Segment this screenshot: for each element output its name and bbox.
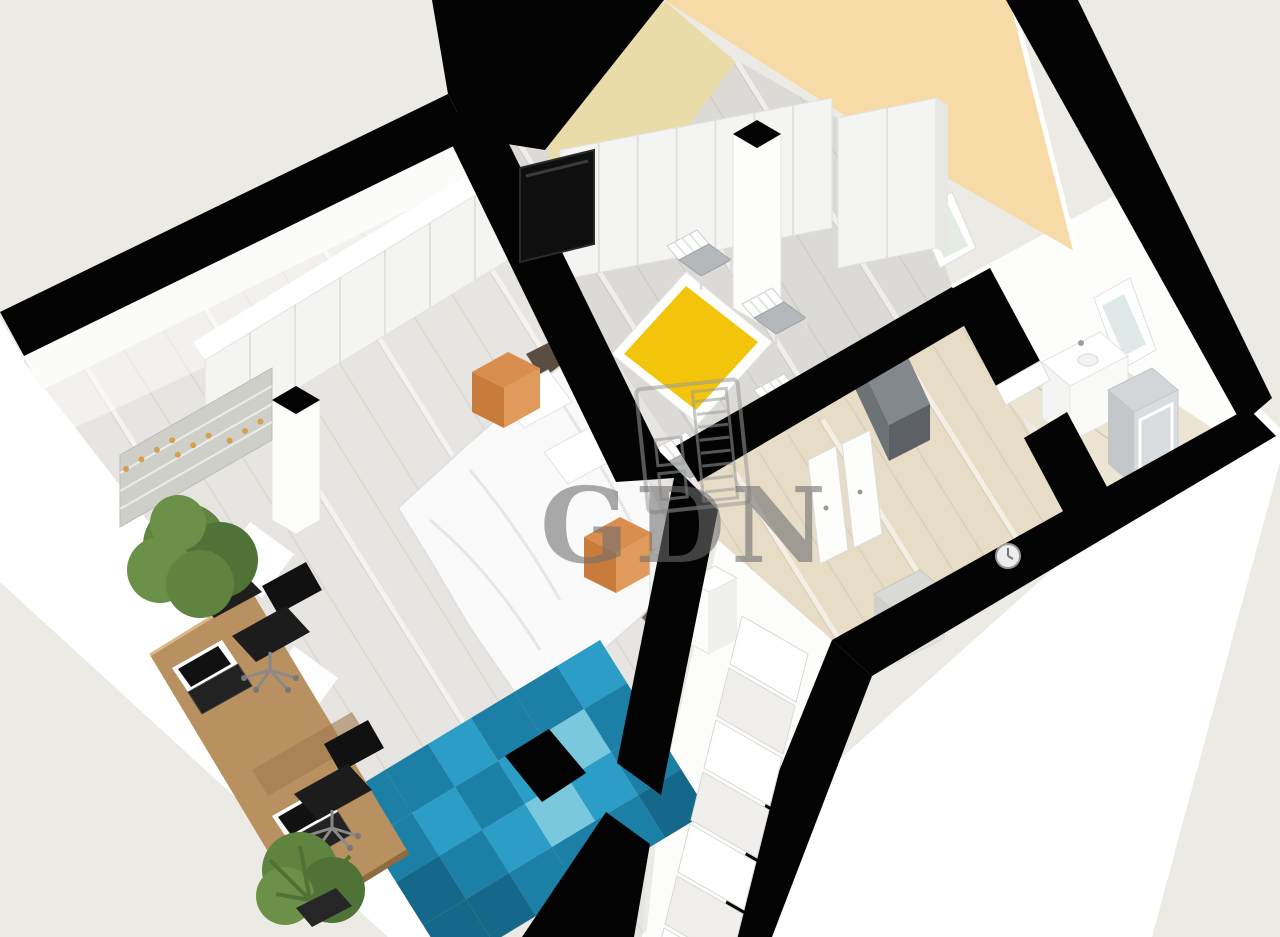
office-chair-wheel [355, 833, 361, 839]
watermark-text: GDN [540, 464, 832, 587]
radiator-brass-dot [227, 438, 233, 444]
plant-bush-foliage [166, 550, 234, 618]
radiator-brass-dot [123, 466, 129, 472]
hall-door-2-handle [858, 490, 863, 495]
radiator-brass-dot [138, 456, 144, 462]
radiator-brass-dot [169, 437, 175, 443]
tv-screen [520, 150, 594, 262]
tall-white-cabinet [838, 98, 948, 268]
chimney-column-bedroom [272, 386, 320, 534]
office-chair-wheel [253, 687, 259, 693]
floor-plan-3d-render: GDN [0, 0, 1280, 937]
plant-bush-foliage [150, 495, 206, 551]
radiator-brass-dot [175, 452, 181, 458]
radiator-brass-dot [242, 428, 248, 434]
wall-tv [520, 150, 594, 262]
tall-cabinet-side [936, 98, 948, 256]
chimney-column-bedroom-body [272, 400, 320, 534]
radiator-brass-dot [257, 418, 263, 424]
wall-clock [996, 544, 1020, 568]
radiator-brass-dot [206, 433, 212, 439]
vanity-sink-basin [1078, 354, 1098, 366]
office-chair-wheel [347, 845, 353, 851]
radiator-brass-dot [154, 447, 160, 453]
floor-plan-stage: GDN [0, 0, 1280, 937]
office-chair-wheel [241, 675, 247, 681]
radiator-brass-dot [190, 442, 196, 448]
office-chair-wheel [293, 675, 299, 681]
office-chair-wheel [285, 687, 291, 693]
vanity-faucet [1078, 340, 1084, 346]
